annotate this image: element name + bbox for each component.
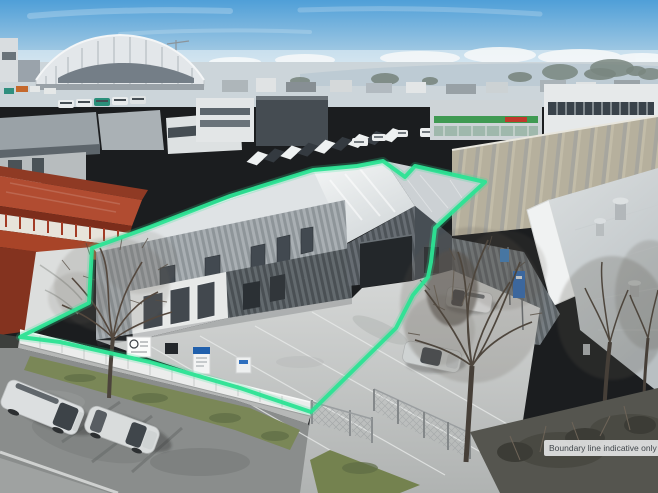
black-sign xyxy=(165,343,178,354)
agency-sign-header xyxy=(193,347,210,354)
ground-floor-opening-2 xyxy=(270,274,285,302)
stadium-base xyxy=(36,84,204,90)
second-shed-roof xyxy=(98,110,164,150)
aerial-photo-canvas xyxy=(0,0,658,493)
tower-window-band xyxy=(2,52,16,60)
aerial-property-photo: Boundary line indicative only xyxy=(0,0,658,493)
small-sign xyxy=(236,357,251,373)
ground-floor-opening xyxy=(243,281,260,310)
charcoal-building xyxy=(256,96,328,146)
boundary-disclaimer-label: Boundary line indicative only xyxy=(544,440,658,456)
